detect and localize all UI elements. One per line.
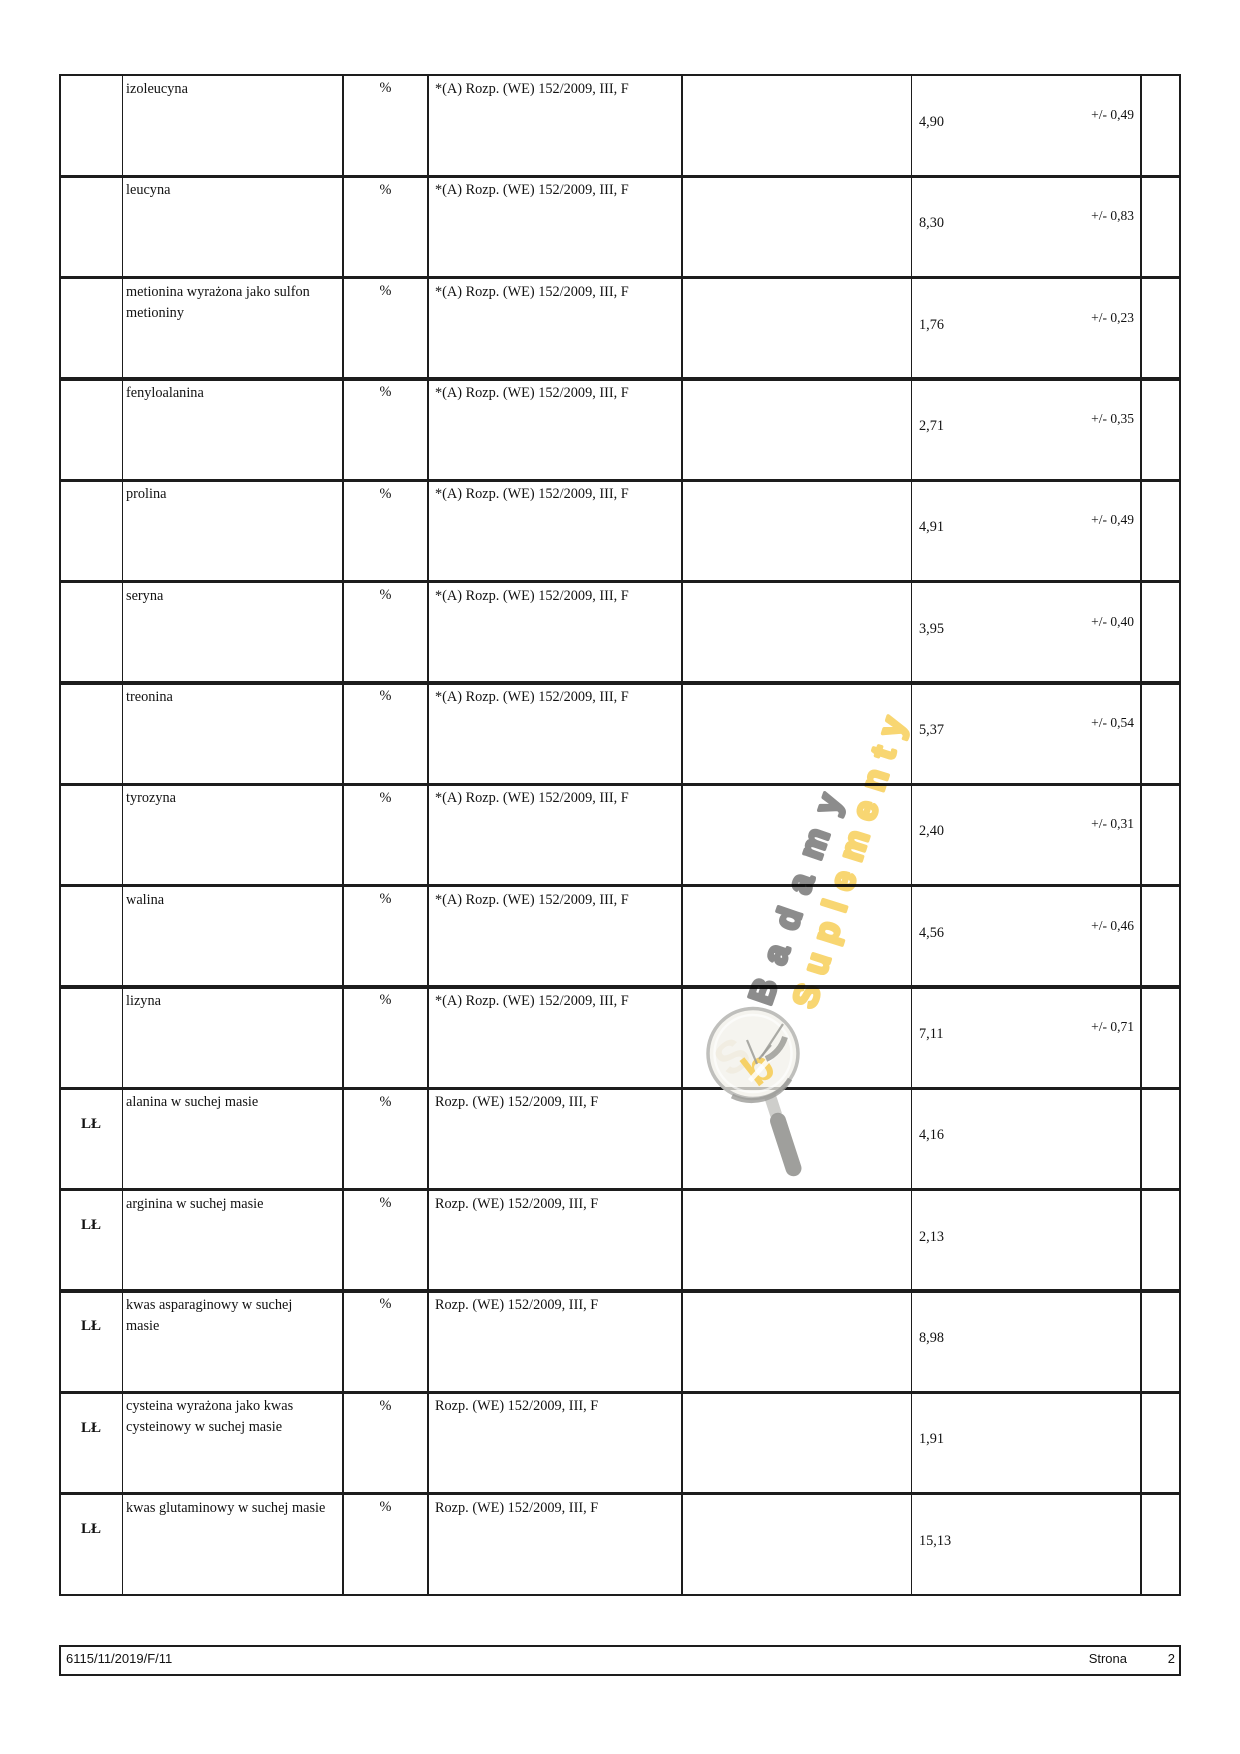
svg-text:Suplementy: Suplementy bbox=[786, 712, 913, 1012]
